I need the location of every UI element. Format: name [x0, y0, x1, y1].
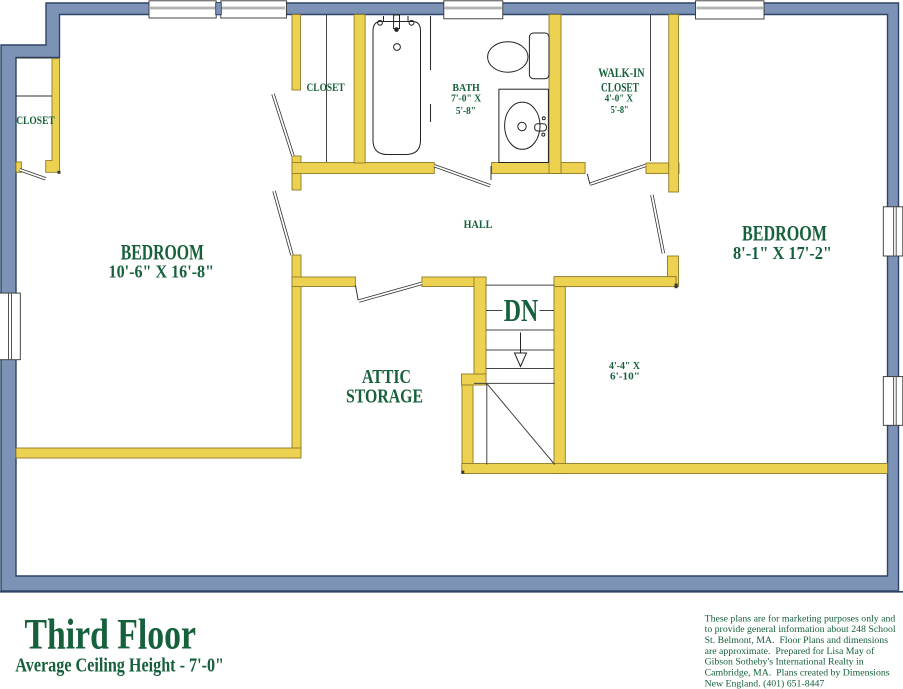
- svg-text:These plans are for marketing: These plans are for marketing purposes o…: [705, 613, 896, 624]
- svg-text:HALL: HALL: [464, 217, 493, 231]
- svg-text:5'-8": 5'-8": [611, 105, 629, 116]
- svg-text:CLOSET: CLOSET: [601, 80, 639, 94]
- svg-text:10'-6" X 16'-8": 10'-6" X 16'-8": [109, 261, 215, 281]
- svg-text:4'-4" X: 4'-4" X: [609, 361, 640, 372]
- svg-text:7'-0" X: 7'-0" X: [451, 94, 481, 105]
- svg-text:CLOSET: CLOSET: [307, 80, 345, 94]
- svg-text:Gibson Sotheby's International: Gibson Sotheby's International Realty in: [705, 657, 864, 668]
- svg-text:5'-8": 5'-8": [456, 106, 476, 117]
- svg-text:Third Floor: Third Floor: [25, 611, 197, 659]
- svg-text:Cambridge, MA. Plans created: Cambridge, MA. Plans created by Dimensio…: [705, 668, 890, 679]
- svg-text:4'-0" X: 4'-0" X: [605, 94, 634, 105]
- svg-text:to provide general information: to provide general information about 248…: [705, 624, 896, 635]
- svg-text:DN: DN: [504, 292, 539, 328]
- svg-text:St. Belmont, MA. Floor Plans: St. Belmont, MA. Floor Plans and dimensi…: [705, 635, 889, 646]
- svg-text:STORAGE: STORAGE: [346, 386, 423, 408]
- svg-text:BEDROOM: BEDROOM: [742, 221, 827, 246]
- svg-text:WALK-IN: WALK-IN: [598, 66, 644, 80]
- svg-text:ATTIC: ATTIC: [362, 366, 411, 388]
- svg-text:New England. (401) 651-8447: New England. (401) 651-8447: [705, 678, 825, 689]
- svg-text:6'-10": 6'-10": [610, 371, 640, 382]
- svg-text:are approximate. Prepared for: are approximate. Prepared for Lisa May o…: [705, 646, 875, 657]
- svg-text:8'-1" X 17'-2": 8'-1" X 17'-2": [733, 243, 832, 263]
- svg-text:Average Ceiling Height - 7'-0": Average Ceiling Height - 7'-0": [15, 655, 224, 677]
- svg-text:BATH: BATH: [452, 83, 480, 94]
- svg-text:CLOSET: CLOSET: [16, 113, 55, 127]
